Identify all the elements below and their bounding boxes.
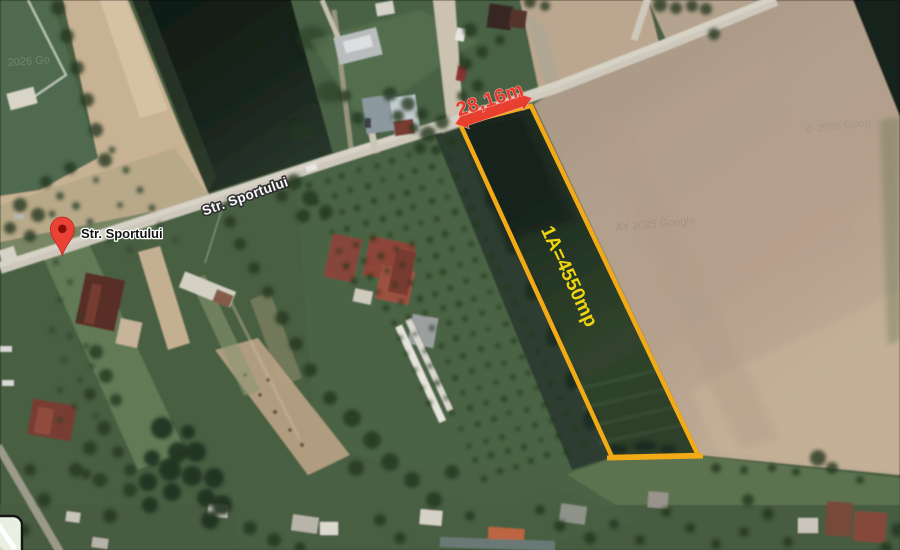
svg-text:Str. Sportului: Str. Sportului — [81, 226, 163, 241]
